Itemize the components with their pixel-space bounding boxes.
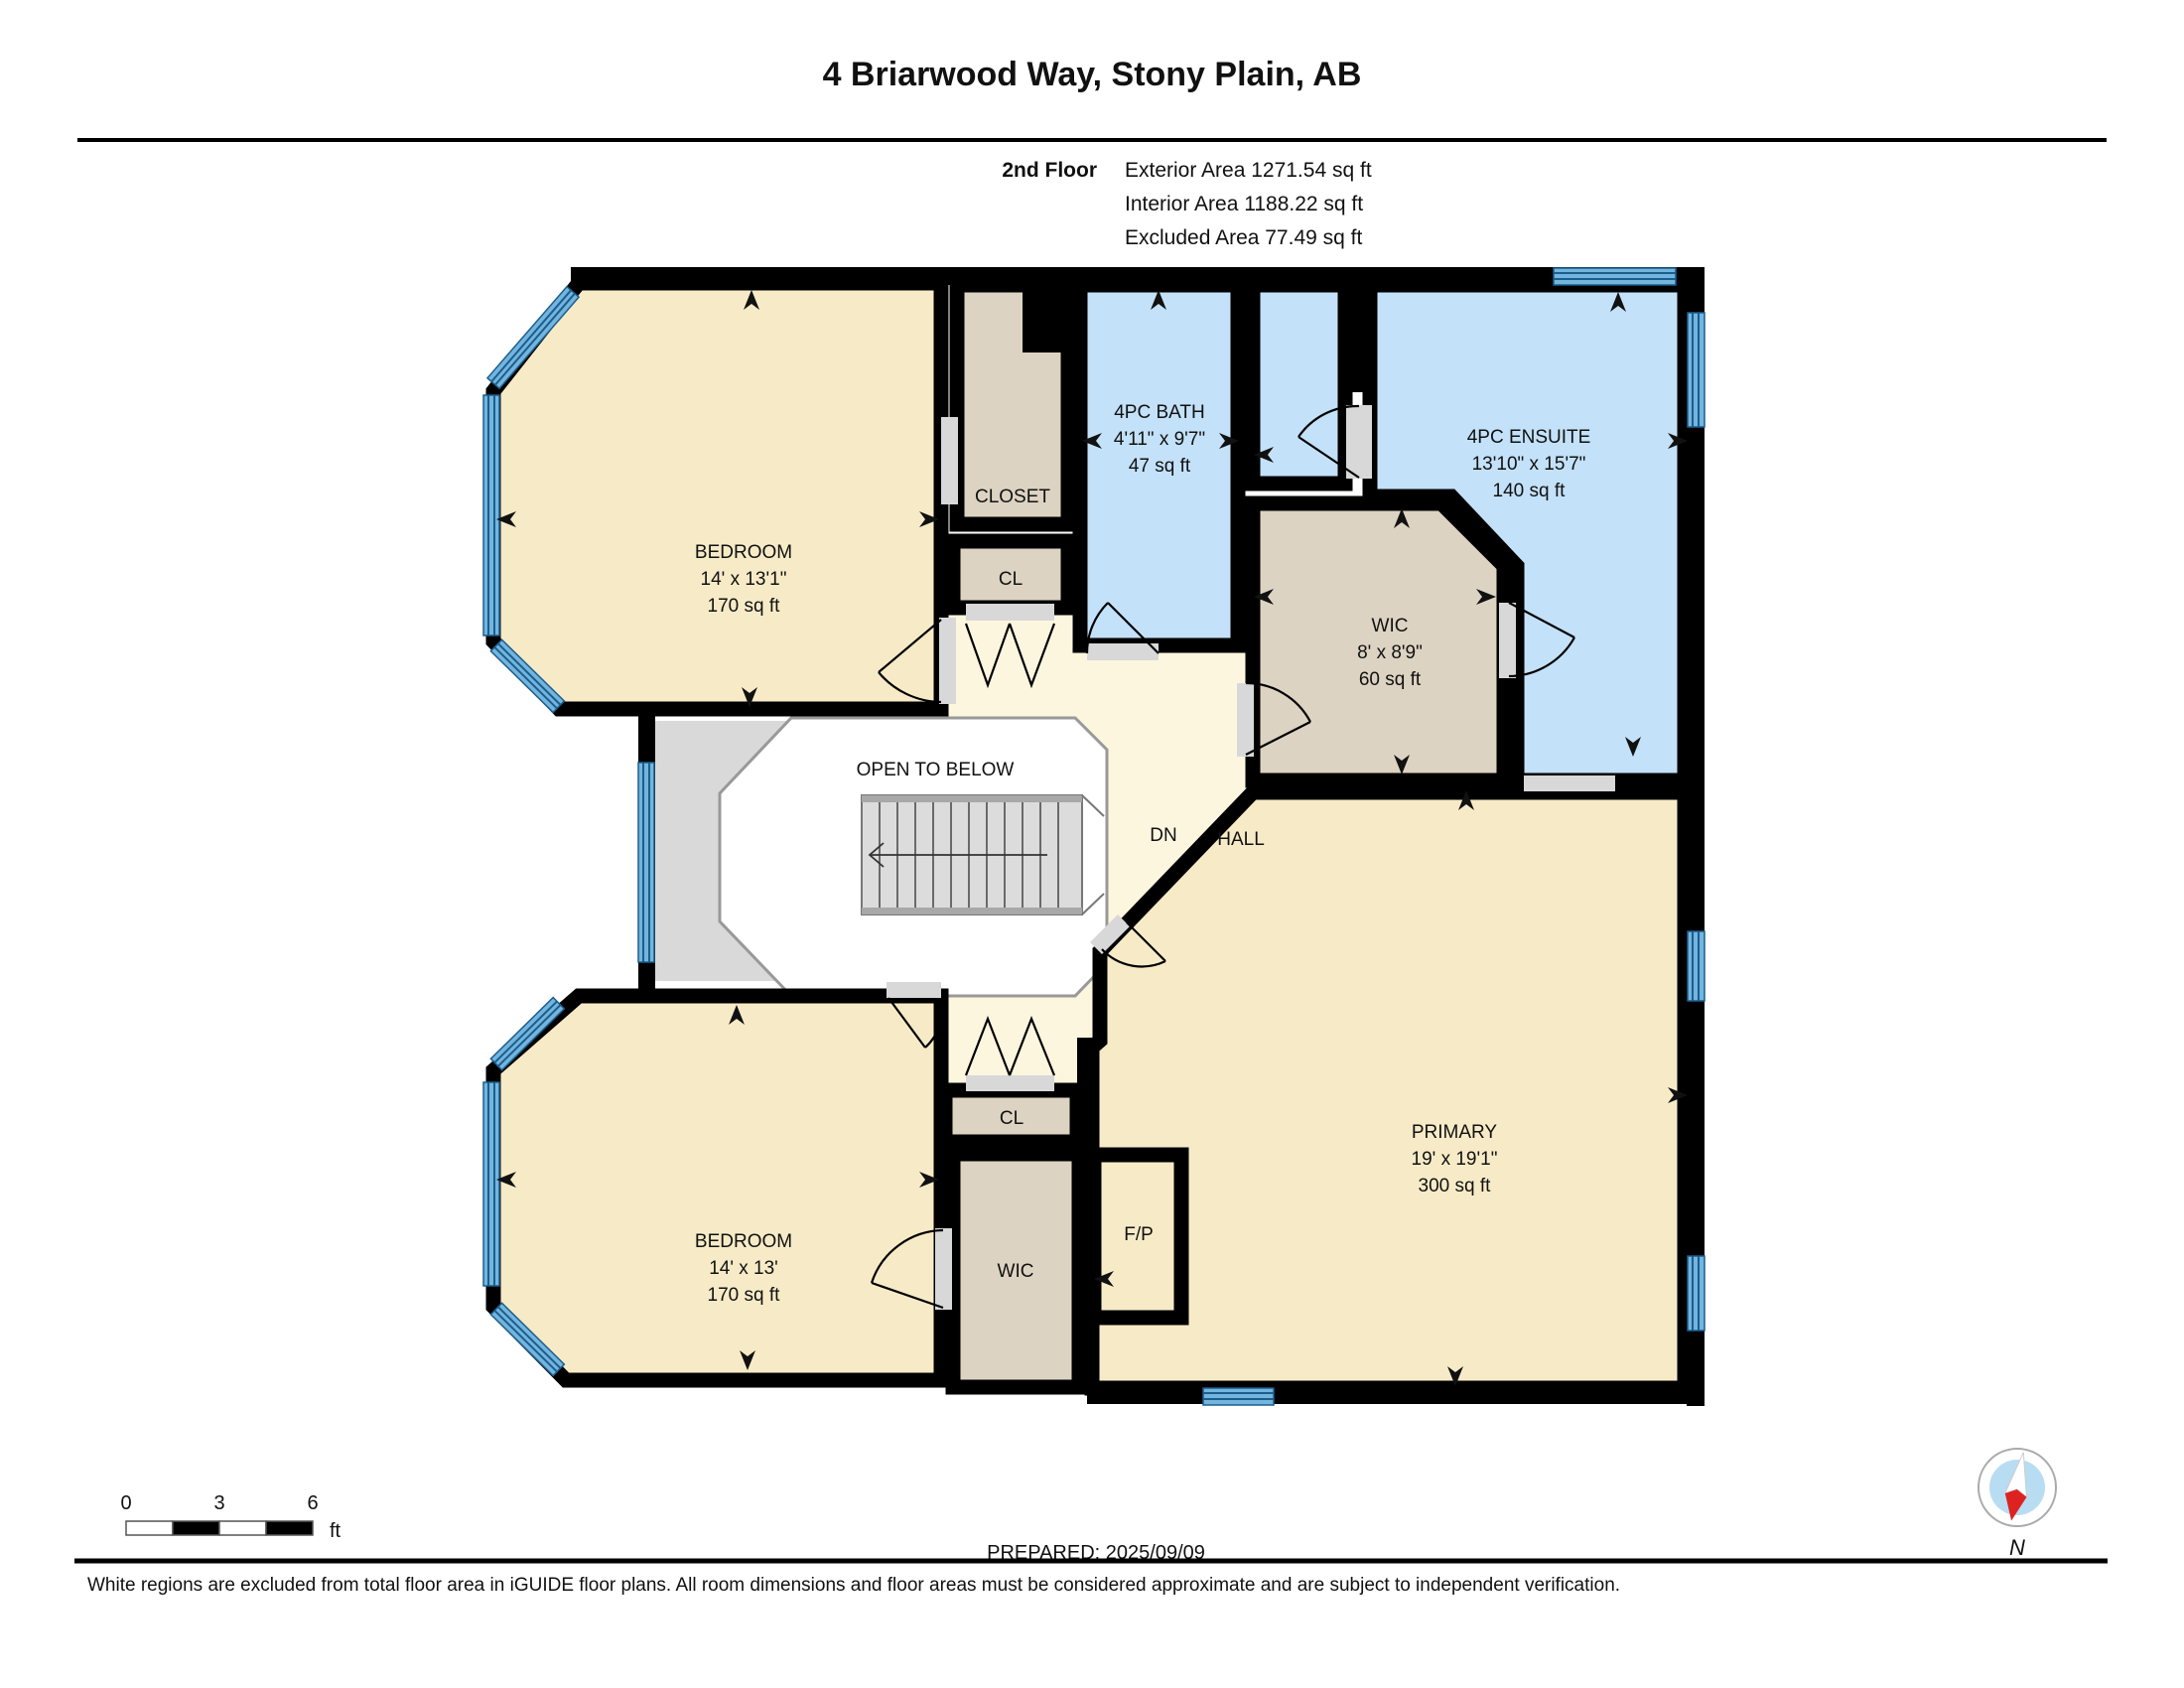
window	[1203, 1388, 1274, 1405]
ensuite-name: 4PC ENSUITE	[1467, 427, 1591, 448]
wic-upper-name: WIC	[1372, 616, 1409, 636]
disclaimer-text: White regions are excluded from total fl…	[87, 1575, 1620, 1596]
wic-upper-area: 60 sq ft	[1359, 669, 1422, 690]
bedroom1-area: 170 sq ft	[708, 596, 781, 617]
scale-bar: 0 3 6 ft	[120, 1492, 341, 1542]
window	[1688, 931, 1705, 1001]
window	[1554, 268, 1676, 285]
compass-north-label: N	[2009, 1535, 2025, 1560]
floorplan-page: 4 Briarwood Way, Stony Plain, AB 2nd Flo…	[0, 0, 2184, 1688]
page-title: 4 Briarwood Way, Stony Plain, AB	[823, 56, 1362, 93]
scale-unit: ft	[330, 1520, 341, 1542]
primary-area: 300 sq ft	[1419, 1176, 1492, 1196]
open-to-below-label: OPEN TO BELOW	[857, 760, 1015, 780]
scale-tick-0: 0	[120, 1492, 131, 1514]
floor-label: 2nd Floor	[1002, 159, 1097, 182]
cl-lower-label: CL	[1000, 1108, 1024, 1129]
interior-area: Interior Area 1188.22 sq ft	[1125, 193, 1363, 215]
compass: N	[1979, 1449, 2056, 1560]
stairs	[862, 795, 1104, 914]
primary-dims: 19' x 19'1"	[1412, 1149, 1498, 1170]
window	[483, 395, 499, 635]
exterior-area: Exterior Area 1271.54 sq ft	[1125, 159, 1372, 182]
ensuite-dims: 13'10" x 15'7"	[1472, 454, 1586, 475]
stairs-dn-label: DN	[1150, 825, 1176, 846]
bedroom1-name: BEDROOM	[695, 542, 792, 563]
excluded-area: Excluded Area 77.49 sq ft	[1125, 226, 1362, 249]
window	[638, 763, 654, 962]
cl-upper-label: CL	[999, 569, 1023, 590]
scale-tick-3: 3	[213, 1492, 224, 1514]
bedroom2-name: BEDROOM	[695, 1231, 792, 1252]
scale-tick-6: 6	[307, 1492, 318, 1514]
wic-lower-label: WIC	[998, 1261, 1034, 1282]
window	[1688, 1256, 1705, 1331]
window	[483, 1082, 499, 1286]
room-bedroom-2	[493, 996, 941, 1380]
bath-area: 47 sq ft	[1129, 456, 1191, 477]
bath-dims: 4'11" x 9'7"	[1114, 429, 1205, 450]
ensuite-area: 140 sq ft	[1493, 481, 1567, 501]
closet-upper-label: CLOSET	[975, 487, 1050, 507]
fireplace-label: F/P	[1124, 1224, 1154, 1245]
bedroom2-area: 170 sq ft	[708, 1285, 781, 1306]
bedroom1-dims: 14' x 13'1"	[701, 569, 787, 590]
floorplan-canvas: 4 Briarwood Way, Stony Plain, AB 2nd Flo…	[0, 0, 2184, 1688]
bedroom2-dims: 14' x 13'	[709, 1258, 778, 1279]
hall-label: HALL	[1217, 829, 1265, 850]
wic-upper-dims: 8' x 8'9"	[1357, 642, 1423, 663]
window	[1688, 313, 1705, 427]
primary-name: PRIMARY	[1412, 1122, 1498, 1143]
room-bedroom-1	[493, 283, 941, 709]
bath-name: 4PC BATH	[1114, 402, 1205, 423]
